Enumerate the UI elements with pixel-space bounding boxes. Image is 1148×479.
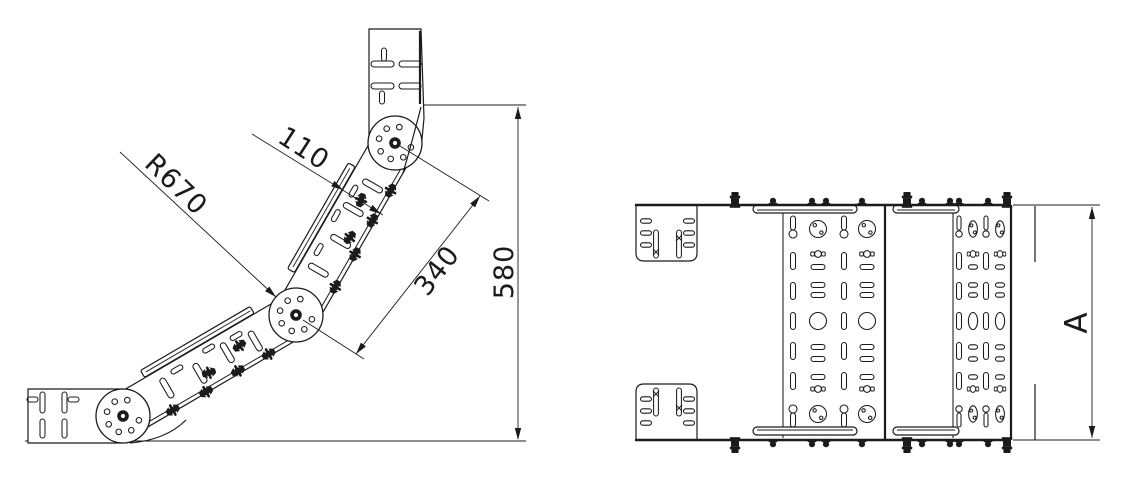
dimension-radius-label: R670 xyxy=(138,148,213,222)
plan-sloped-panel xyxy=(953,205,1011,440)
panel-slot-column xyxy=(956,216,989,427)
plan-view-dimensions: A xyxy=(1013,205,1100,440)
plan-straight-panel xyxy=(783,205,885,440)
arrowhead-icon xyxy=(1089,426,1095,438)
arrowhead-icon xyxy=(1089,207,1095,219)
dimension-height-label: 580 xyxy=(489,245,520,300)
arrowhead-icon xyxy=(515,107,521,119)
panel-hole-column xyxy=(967,221,1006,422)
panel-slot-column xyxy=(789,216,848,427)
dimension-length-label: 340 xyxy=(408,240,466,302)
dimension-width-label: 110 xyxy=(272,121,335,177)
dimension-overall-label: A xyxy=(1059,312,1095,333)
arrowhead-icon xyxy=(515,428,521,440)
hinge-joint-lower xyxy=(96,389,150,443)
panel-hole-column xyxy=(810,221,876,423)
drawing-svg: 580 340 110 R670 xyxy=(0,0,1148,479)
hinge-joint-middle xyxy=(269,288,323,342)
plan-left-end-plates xyxy=(636,205,697,440)
technical-drawing-sheet: 580 340 110 R670 xyxy=(0,0,1148,479)
plan-splice-bars xyxy=(753,205,959,435)
hinge-joint-upper xyxy=(368,116,422,170)
plan-view: A xyxy=(635,192,1100,453)
side-view: 580 340 110 R670 xyxy=(25,29,526,443)
